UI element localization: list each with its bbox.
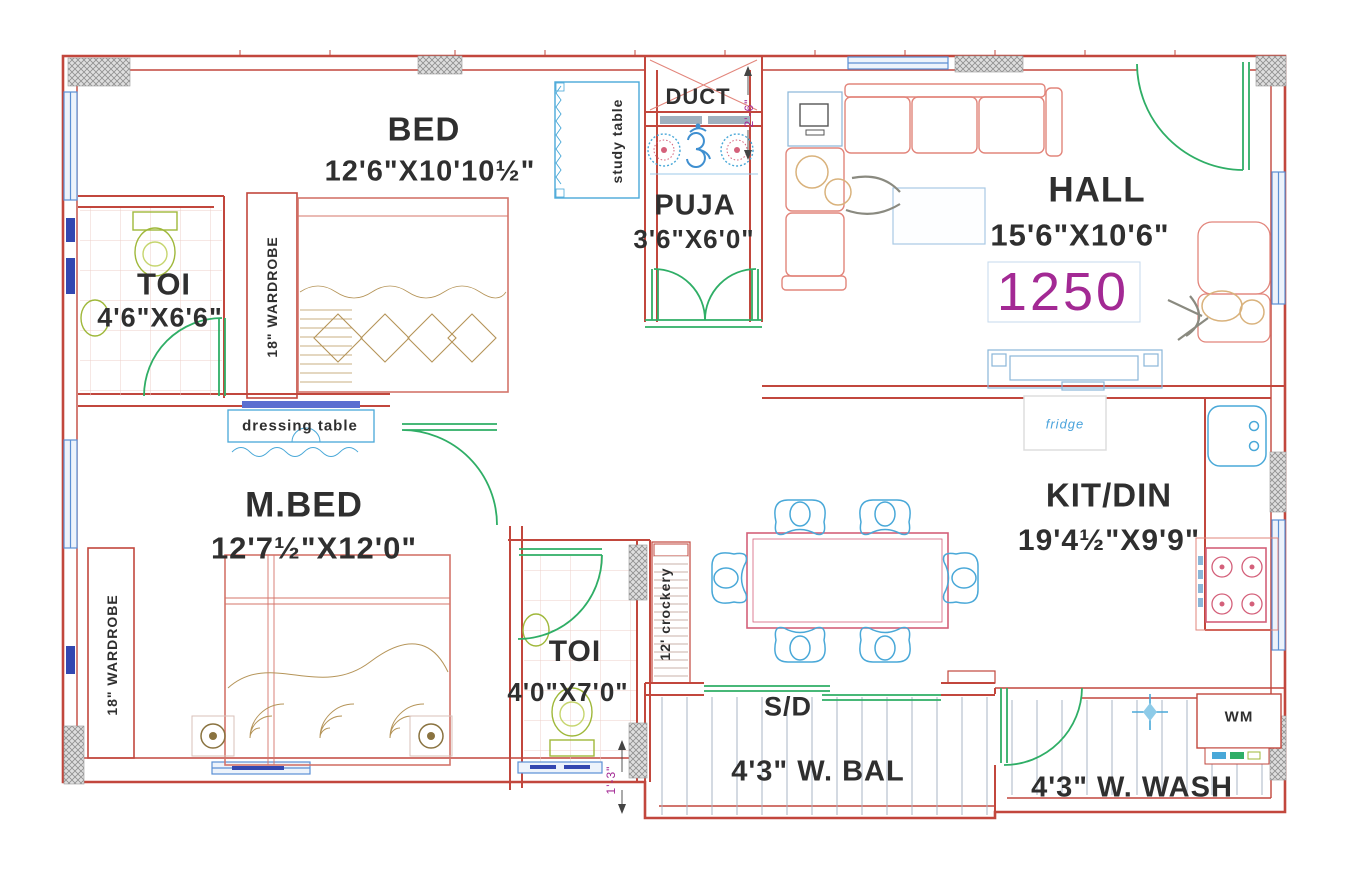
room-label-kitdin: KIT/DIN [1046, 479, 1172, 512]
room-label-toi1: TOI [137, 269, 191, 300]
sofa-icon [782, 84, 1062, 290]
room-label-hall: HALL [1048, 173, 1145, 208]
tv-unit-icon [988, 350, 1162, 390]
sliding-door-label: S/D [764, 694, 812, 721]
fridge-label: fridge [1046, 418, 1085, 431]
total-area-value: 1250 [997, 265, 1129, 319]
armchair-icon [1198, 222, 1270, 342]
floorplan-canvas: BED 12'6"X10'10½" TOI 4'6"X6'6" 18" WARD… [0, 0, 1346, 878]
dining-table-icon [747, 533, 948, 628]
room-dims-toi2: 4'0"X7'0" [507, 679, 628, 705]
dressing-table-label: dressing table [242, 419, 358, 434]
room-dims-mbed: 12'7½"X12'0" [211, 533, 417, 564]
person-icon [1168, 291, 1264, 340]
room-dims-puja: 3'6"X6'0" [633, 226, 754, 252]
stove-icon [1196, 538, 1278, 630]
room-dims-bed: 12'6"X10'10½" [325, 158, 536, 187]
bedside-stool-icon [192, 716, 452, 756]
room-label-balcony: 4'3" W. BAL [731, 758, 904, 787]
om-symbol-icon [687, 124, 710, 167]
wardrobe-label-bottom: 18" WARDROBE [105, 594, 119, 715]
room-label-puja: PUJA [654, 192, 735, 221]
room-dims-hall: 15'6"X10'6" [990, 220, 1169, 251]
washing-machine-icon [1197, 694, 1281, 764]
study-table-label: study table [610, 99, 624, 184]
room-dims-kitdin: 19'4½"X9'9" [1018, 526, 1200, 556]
floorplan-drawing [0, 0, 1346, 878]
center-table-icon [893, 188, 985, 244]
room-label-mbed: M.BED [245, 488, 363, 523]
master-bed-icon [225, 555, 450, 765]
wardrobe-label-top: 18" WARDROBE [265, 236, 279, 357]
kitchen-sink-icon [1208, 406, 1266, 466]
room-label-duct: DUCT [665, 86, 730, 108]
dim-balcony-offset: 1'-3" [605, 766, 617, 795]
study-table-icon [555, 82, 639, 198]
crockery-label: 12' crockery [658, 567, 672, 660]
washing-machine-label: WM [1225, 710, 1254, 725]
room-label-bed: BED [388, 113, 461, 146]
dining-chair-icon [712, 500, 978, 662]
dim-duct-width: 2'-6" [743, 99, 755, 128]
person-icon [796, 156, 900, 214]
room-label-wash: 4'3" W. WASH [1031, 774, 1233, 803]
room-dims-toi1: 4'6"X6'6" [97, 305, 223, 332]
computer-table-icon [788, 92, 842, 146]
bed-icon [298, 198, 508, 392]
room-label-toi2: TOI [549, 637, 601, 667]
